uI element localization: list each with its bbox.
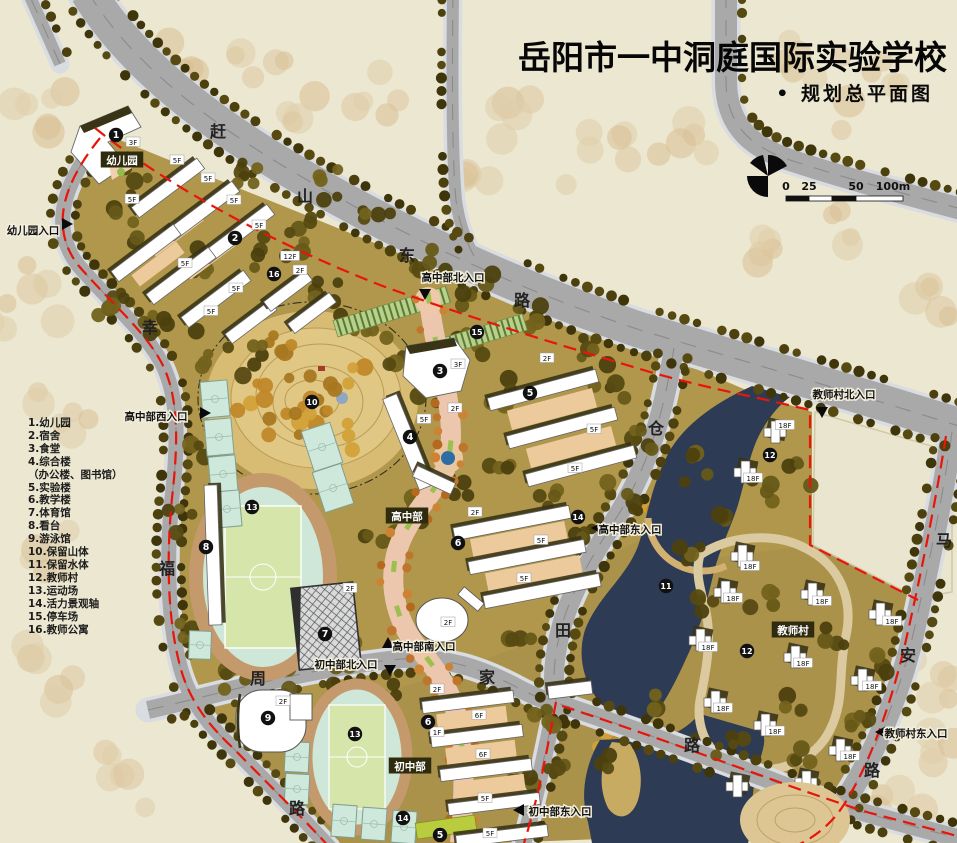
road-name-char: 路 <box>514 291 531 310</box>
floor-label: 18F <box>744 563 757 571</box>
scale-label: 25 <box>801 180 816 193</box>
number-marker-label: 16 <box>268 270 280 279</box>
entrance-label: 高中部北入口 <box>422 271 485 284</box>
road-name-char: 田 <box>555 621 571 640</box>
floor-label: 18F <box>844 753 857 761</box>
road-name-char: 东 <box>399 246 415 265</box>
floor-label: 5F <box>230 197 238 205</box>
floor-label: 2F <box>279 698 287 706</box>
floor-label: 2F <box>433 686 441 694</box>
road-name-char: 周 <box>250 669 266 688</box>
legend-item: 16.教师公寓 <box>28 624 123 637</box>
page-title: 岳阳市一中洞庭国际实验学校 <box>518 31 947 79</box>
area-label: 高中部 <box>391 510 423 523</box>
scale-label: 100m <box>876 180 910 193</box>
scale-label: 50 <box>848 180 864 193</box>
legend-item: 8.看台 <box>28 520 123 533</box>
floor-label: 5F <box>571 465 579 473</box>
page-subtitle: • 规划总平面图 <box>776 79 933 106</box>
floor-label: 18F <box>769 728 782 736</box>
floor-label: 12F <box>284 253 297 261</box>
road-name-char: 家 <box>479 668 496 687</box>
road-name-char: 安 <box>900 646 916 665</box>
number-marker-label: 13 <box>246 503 257 512</box>
number-marker-label: 5 <box>437 830 444 841</box>
legend: 1.幼儿园2.宿舍3.食堂4.综合楼（办公楼、图书馆）5.实验楼6.教学楼7.体… <box>28 417 123 636</box>
court <box>331 804 357 838</box>
legend-item: 7.体育馆 <box>28 507 123 520</box>
number-marker-label: 15 <box>471 328 483 337</box>
floor-label: 5F <box>420 416 428 424</box>
legend-item: 1.幼儿园 <box>28 417 123 430</box>
legend-item: 5.实验楼 <box>28 482 123 495</box>
number-marker-label: 2 <box>232 233 239 244</box>
court <box>204 418 234 456</box>
floor-label: 2F <box>444 619 452 627</box>
number-marker-label: 8 <box>203 542 210 553</box>
number-marker-label: 3 <box>437 366 444 377</box>
number-marker-label: 13 <box>349 730 360 739</box>
floor-label: 1F <box>433 729 441 737</box>
entrance-label: 初中部东入口 <box>529 805 592 818</box>
number-marker-label: 4 <box>407 432 414 443</box>
scale-label: 0 <box>782 180 790 193</box>
number-marker-label: 9 <box>265 713 272 724</box>
floor-label: 5F <box>232 285 240 293</box>
legend-item: 4.综合楼 <box>28 456 123 469</box>
site-plan-map: 赶山东路幸福路仓田周家路马安路幼儿园入口高中部西入口高中部北入口教师村北入口高中… <box>0 0 957 843</box>
road-name-char: 幸 <box>142 318 158 337</box>
area-label: 幼儿园 <box>106 154 138 167</box>
number-marker-label: 12 <box>764 451 775 460</box>
entrance-label: 初中部北入口 <box>315 658 378 671</box>
gym-building <box>291 582 361 670</box>
floor-label: 18F <box>717 705 730 713</box>
entrance-label: 幼儿园入口 <box>7 224 60 237</box>
floor-label: 5F <box>128 196 136 204</box>
number-marker-label: 11 <box>660 582 672 591</box>
number-marker-label: 1 <box>113 130 120 141</box>
floor-label: 2F <box>296 267 304 275</box>
floor-label: 18F <box>886 618 899 626</box>
legend-item: 3.食堂 <box>28 443 123 456</box>
road-name-char: 赶 <box>209 122 227 141</box>
road-name-char: 福 <box>158 559 175 578</box>
floor-label: 5F <box>486 830 494 838</box>
floor-label: 5F <box>481 795 489 803</box>
legend-item: 12.教师村 <box>28 572 123 585</box>
road-name-char: 路 <box>289 799 306 818</box>
court <box>189 631 212 660</box>
floor-label: 18F <box>797 660 810 668</box>
floor-label: 18F <box>727 595 740 603</box>
floor-label: 6F <box>475 712 483 720</box>
legend-item: 2.宿舍 <box>28 430 123 443</box>
court <box>361 807 387 841</box>
legend-item: 6.教学楼 <box>28 494 123 507</box>
area-label: 初中部 <box>394 760 426 773</box>
entrance-label: 高中部西入口 <box>125 410 188 423</box>
floor-label: 5F <box>255 222 263 230</box>
road-name-char: 路 <box>864 761 881 780</box>
floor-label: 5F <box>207 308 215 316</box>
number-marker-label: 14 <box>397 814 409 823</box>
legend-item: 11.保留水体 <box>28 559 123 572</box>
road-name-char: 马 <box>936 531 952 550</box>
legend-item: 13.运动场 <box>28 585 123 598</box>
floor-label: 18F <box>747 475 760 483</box>
area-label: 教师村 <box>776 624 809 637</box>
floor-label: 3F <box>454 361 462 369</box>
fountain <box>441 451 455 465</box>
floor-label: 2F <box>451 405 459 413</box>
number-marker-label: 6 <box>455 538 462 549</box>
road-name-char: 山 <box>297 187 313 206</box>
entrance-label: 高中部东入口 <box>599 523 662 536</box>
entrance-label: 教师村东入口 <box>884 727 948 740</box>
entrance-label: 高中部南入口 <box>393 640 456 653</box>
legend-item: （办公楼、图书馆） <box>28 469 123 482</box>
floor-label: 5F <box>173 157 181 165</box>
number-marker-label: 6 <box>425 717 432 728</box>
floor-label: 5F <box>590 426 598 434</box>
legend-item: 9.游泳馆 <box>28 533 123 546</box>
number-marker-label: 7 <box>322 629 329 640</box>
road-name-char: 仓 <box>647 419 665 438</box>
road-name-char: 路 <box>684 736 701 755</box>
floor-label: 18F <box>702 644 715 652</box>
floor-label: 5F <box>520 575 528 583</box>
legend-item: 15.停车场 <box>28 611 123 624</box>
legend-item: 14.活力景观轴 <box>28 598 123 611</box>
floor-label: 6F <box>479 751 487 759</box>
floor-label: 5F <box>204 175 212 183</box>
entrance-label: 教师村北入口 <box>812 388 876 401</box>
floor-label: 18F <box>779 422 792 430</box>
number-marker-label: 14 <box>572 513 584 522</box>
map-canvas: 赶山东路幸福路仓田周家路马安路幼儿园入口高中部西入口高中部北入口教师村北入口高中… <box>0 0 957 843</box>
legend-item: 10.保留山体 <box>28 546 123 559</box>
floor-label: 5F <box>181 260 189 268</box>
floor-label: 3F <box>129 139 137 147</box>
number-marker-label: 5 <box>527 388 534 399</box>
number-marker-label: 12 <box>741 647 752 656</box>
floor-label: 18F <box>816 598 829 606</box>
floor-label: 2F <box>543 355 551 363</box>
number-marker-label: 10 <box>306 398 318 407</box>
floor-label: 5F <box>537 537 545 545</box>
floor-label: 2F <box>471 509 479 517</box>
floor-label: 2F <box>346 585 354 593</box>
floor-label: 18F <box>866 683 879 691</box>
